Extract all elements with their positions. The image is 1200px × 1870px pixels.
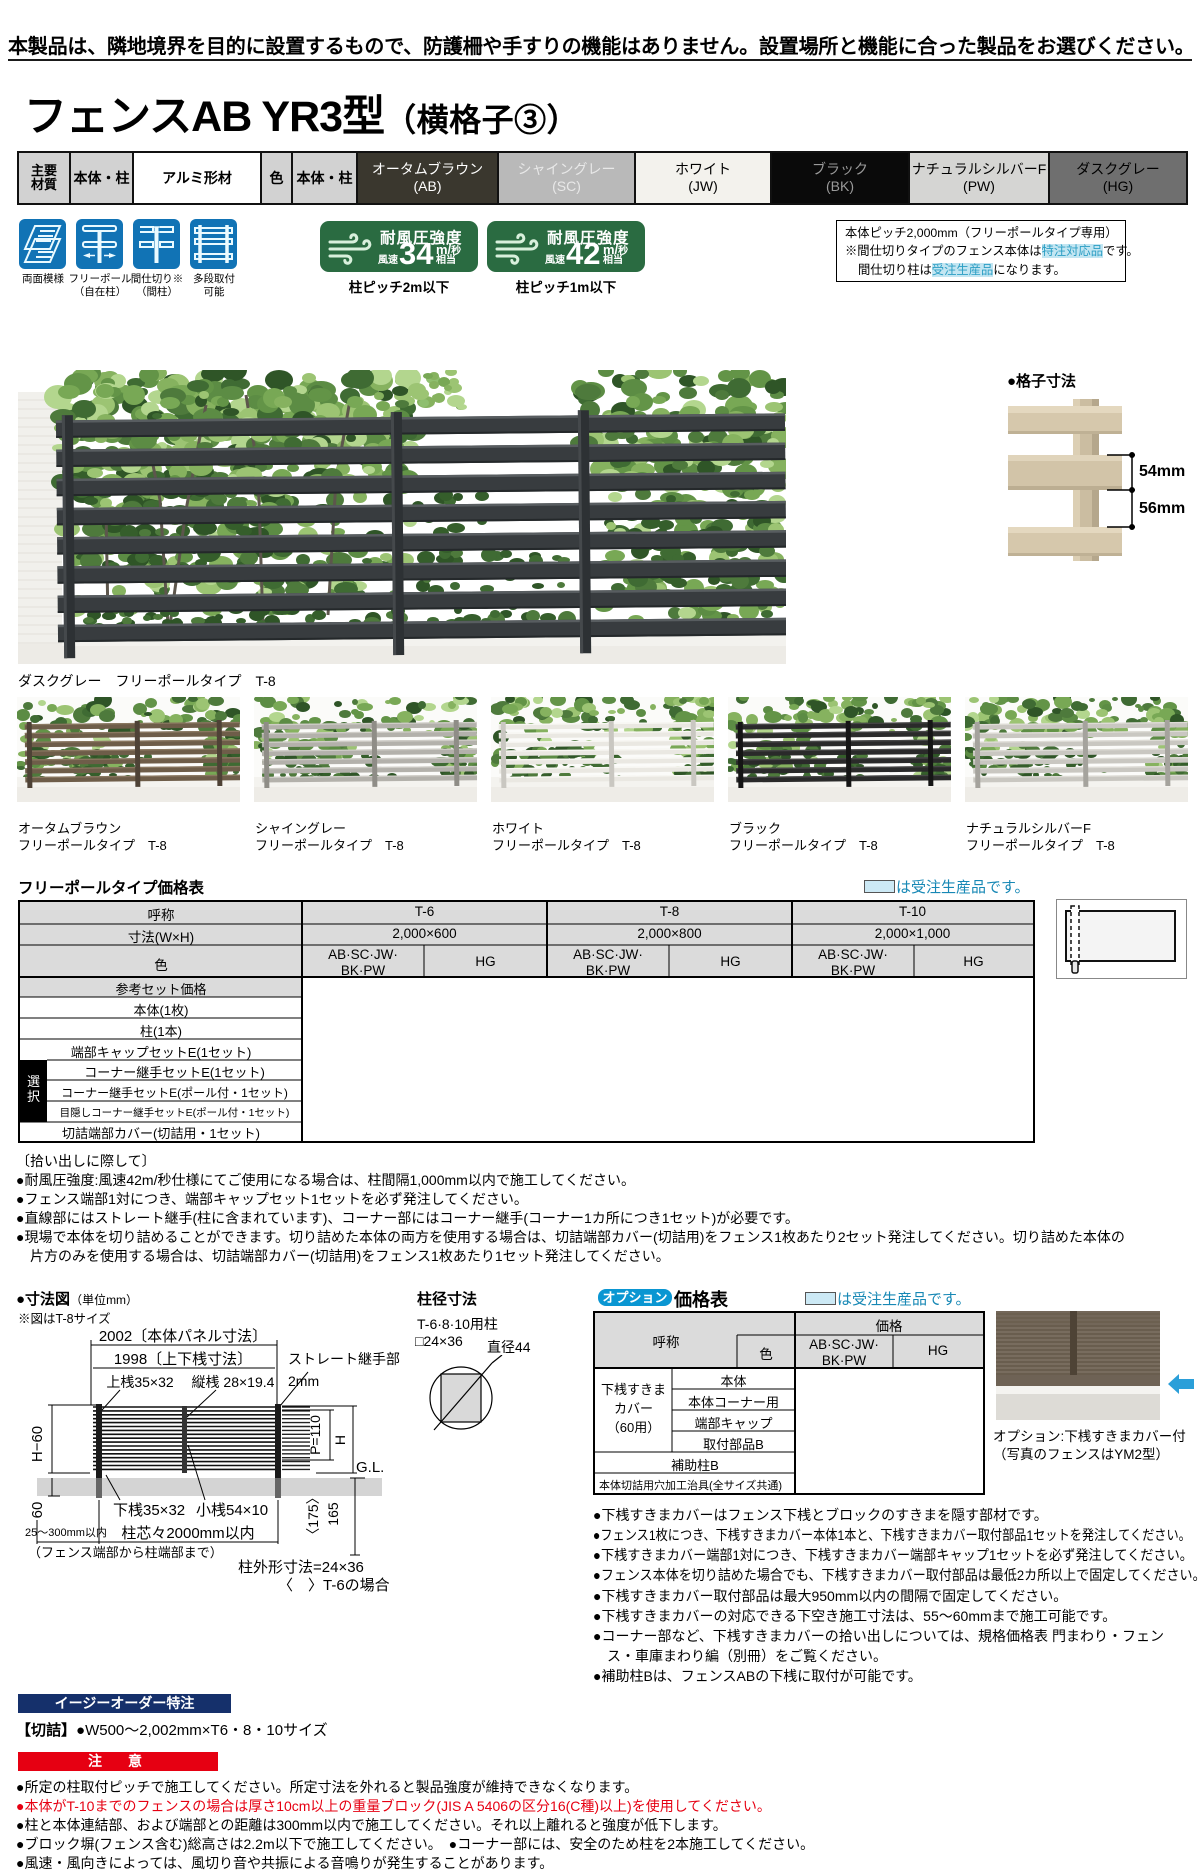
svg-text:〈 〉T-6の場合: 〈 〉T-6の場合 <box>278 1577 390 1594</box>
svg-text:2002〔本体パネル寸法〕: 2002〔本体パネル寸法〕 <box>99 1328 267 1345</box>
svg-text:25〜300mm以内: 25〜300mm以内 <box>25 1525 107 1539</box>
svg-text:1998〔上下桟寸法〕: 1998〔上下桟寸法〕 <box>114 1351 252 1368</box>
svg-text:柱外形寸法=24×36: 柱外形寸法=24×36 <box>238 1559 364 1576</box>
svg-text:60: 60 <box>29 1502 46 1519</box>
svg-text:柱芯々2000mm以内: 柱芯々2000mm以内 <box>121 1525 254 1542</box>
svg-text:G.L.: G.L. <box>356 1459 384 1476</box>
svg-text:下桟35×32: 下桟35×32 <box>113 1502 185 1519</box>
svg-text:（フェンス端部から柱端部まで）: （フェンス端部から柱端部まで） <box>28 1545 223 1560</box>
svg-text:H: H <box>332 1435 348 1445</box>
svg-text:小桟54×10: 小桟54×10 <box>196 1502 268 1519</box>
svg-text:H−60: H−60 <box>29 1426 46 1462</box>
svg-text:〈175〉: 〈175〉 <box>305 1490 321 1541</box>
svg-text:165: 165 <box>325 1502 341 1526</box>
svg-text:P=110: P=110 <box>307 1415 323 1455</box>
svg-text:縦桟 28×19.4: 縦桟 28×19.4 <box>192 1374 275 1390</box>
svg-text:上桟35×32: 上桟35×32 <box>106 1374 174 1390</box>
svg-text:2mm: 2mm <box>288 1373 319 1389</box>
svg-text:ストレート継手部: ストレート継手部 <box>288 1351 400 1367</box>
